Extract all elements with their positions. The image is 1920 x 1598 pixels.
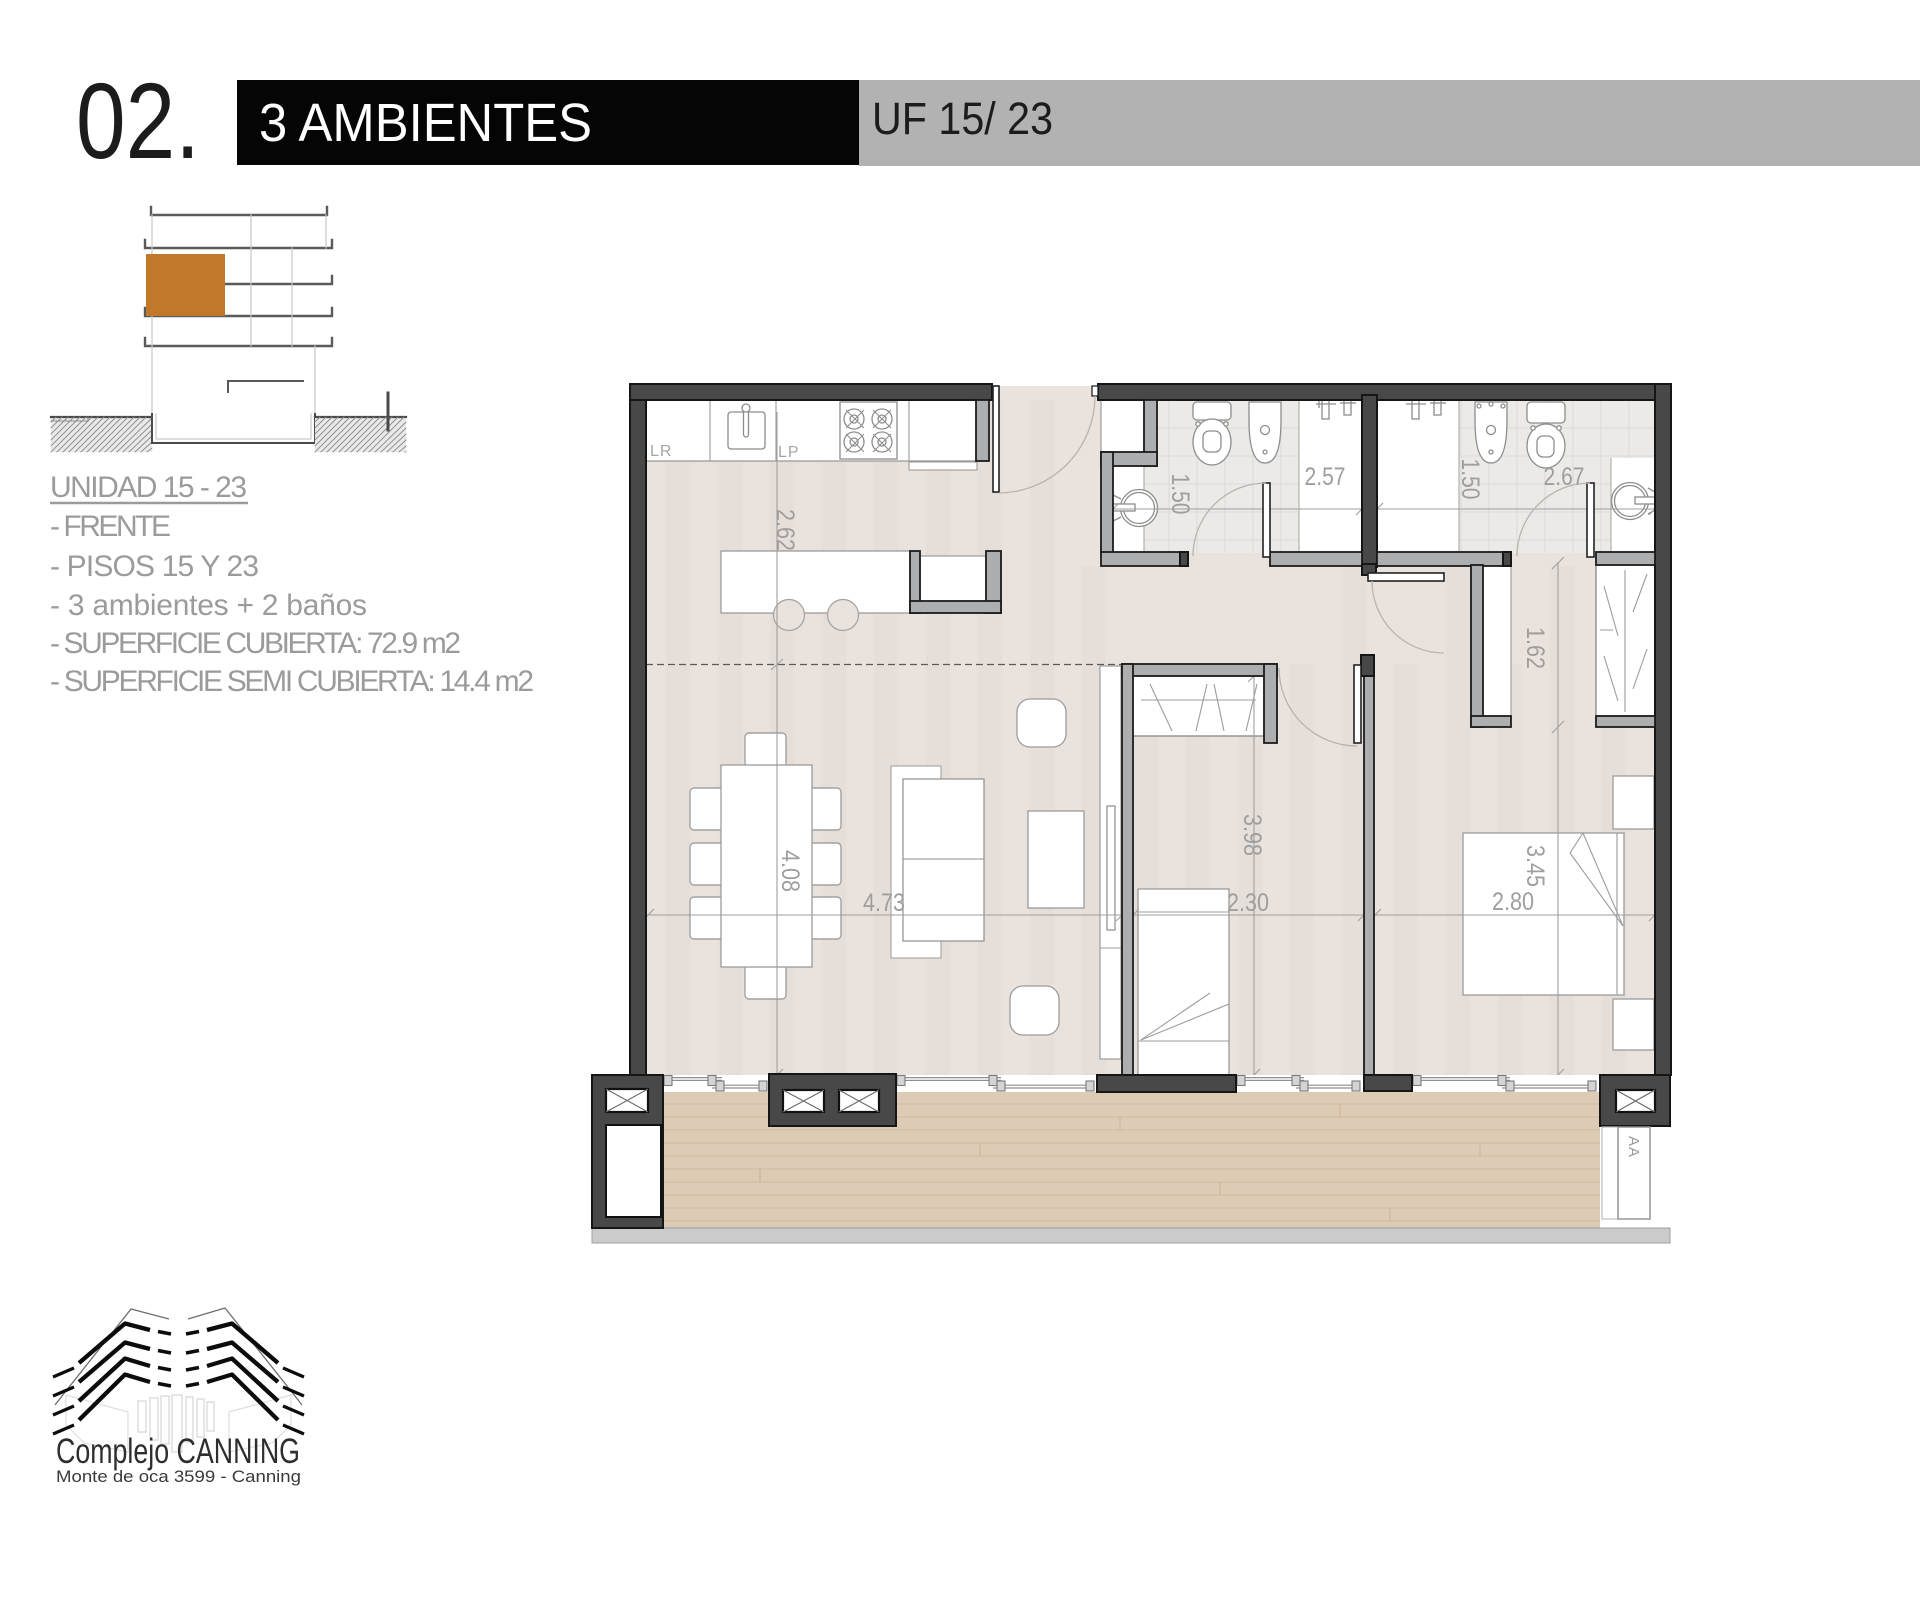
svg-text:2.30: 2.30	[1227, 889, 1269, 917]
svg-text:2.80: 2.80	[1492, 888, 1534, 916]
svg-text:UF 15/ 23: UF 15/ 23	[872, 93, 1053, 144]
svg-text:- FRENTE: - FRENTE	[50, 510, 171, 543]
svg-text:1.50: 1.50	[1456, 459, 1484, 500]
svg-text:4.08: 4.08	[776, 850, 804, 892]
svg-text:3.98: 3.98	[1238, 814, 1266, 856]
svg-text:02.: 02.	[76, 60, 200, 181]
svg-text:1.62: 1.62	[1521, 627, 1549, 669]
svg-text:Monte de oca 3599 - Canning: Monte de oca 3599 - Canning	[56, 1468, 301, 1486]
svg-text:- SUPERFICIE CUBIERTA: 72.9 m2: - SUPERFICIE CUBIERTA: 72.9 m2	[50, 627, 461, 660]
svg-text:2.62: 2.62	[771, 509, 799, 551]
svg-text:3.45: 3.45	[1521, 845, 1549, 887]
svg-text:- 3 ambientes + 2 baños: - 3 ambientes + 2 baños	[50, 589, 367, 622]
svg-text:2.67: 2.67	[1544, 463, 1585, 491]
svg-text:1.50: 1.50	[1166, 474, 1194, 515]
svg-text:LP: LP	[778, 444, 800, 461]
svg-text:4.73: 4.73	[863, 889, 905, 917]
svg-text:AA: AA	[1625, 1136, 1642, 1158]
svg-text:UNIDAD 15 - 23: UNIDAD 15 - 23	[50, 471, 247, 504]
svg-text:LR: LR	[650, 443, 672, 460]
svg-text:- PISOS 15 Y 23: - PISOS 15 Y 23	[50, 550, 259, 583]
svg-text:Complejo CANNING: Complejo CANNING	[56, 1432, 300, 1471]
svg-text:- SUPERFICIE SEMI CUBIERTA: 14: - SUPERFICIE SEMI CUBIERTA: 14.4 m2	[50, 665, 534, 698]
svg-text:2.57: 2.57	[1305, 463, 1346, 491]
svg-text:3 AMBIENTES: 3 AMBIENTES	[259, 93, 592, 153]
